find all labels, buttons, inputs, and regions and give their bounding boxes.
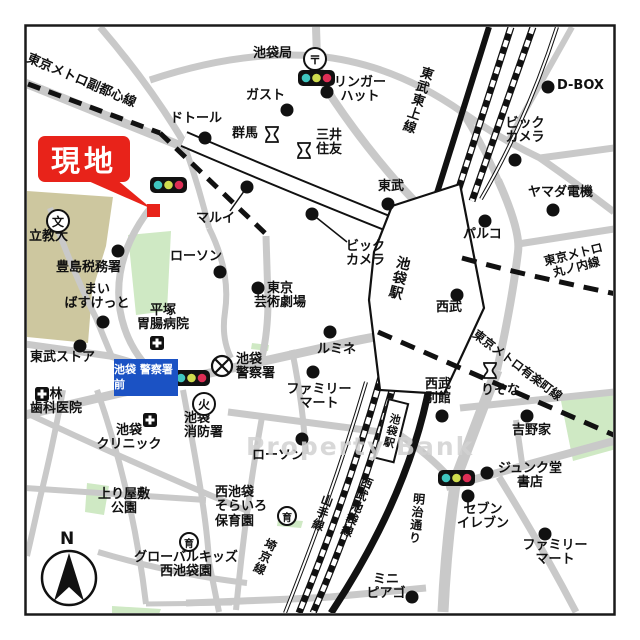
poi-dot-mybasket — [97, 316, 110, 329]
poi-dot-seven — [462, 490, 475, 503]
place-label-bic-camera-center: ビック カメラ — [346, 240, 385, 269]
watermark: Property Bank — [246, 432, 474, 461]
post-office-glyph: 〒 — [309, 51, 321, 68]
poi-dot-seibu-annex — [436, 410, 449, 423]
place-label-ringer-hut: リンガー ハット — [330, 76, 390, 105]
place-label-hiratsuka-hospital: 平塚 胃腸病院 — [133, 304, 193, 333]
police-icon — [212, 356, 232, 376]
place-label-tobu: 東武 — [378, 180, 404, 194]
compass-north-label: N — [60, 530, 74, 549]
poi-dot-tobu — [382, 198, 395, 211]
poi-dot-lumine — [324, 326, 337, 339]
place-label-my-basket: まい ばすけっと — [62, 283, 132, 312]
traffic-light-icon — [150, 177, 187, 193]
place-label-sorairo-nursery: 西池袋 そらいろ 保育園 — [215, 486, 267, 529]
site-marker-label: 現地 — [38, 136, 130, 182]
place-label-ikebukuro-post-office: 池袋局 — [253, 47, 292, 61]
poi-dot-gusto — [281, 104, 294, 117]
nursery-icon: 育 — [277, 506, 297, 526]
traffic-light-icon — [173, 370, 210, 386]
place-label-mini-piago: ミニ ピアゴ — [362, 573, 410, 602]
post-office-icon: 〒 — [303, 47, 327, 71]
poi-dot-familymart-c — [307, 366, 320, 379]
nursery-glyph: 育 — [282, 509, 292, 524]
poi-dot-tax-office — [112, 245, 125, 258]
place-label-toshima-tax-office: 豊島税務署 — [56, 261, 121, 275]
school-glyph: 文 — [52, 213, 64, 230]
bus-stop-sign-ikebukuro-keisatsusho-mae: 池袋 警察署前 — [114, 359, 178, 396]
poi-dot-lawson-n — [214, 266, 227, 279]
school-icon: 文 — [46, 209, 70, 233]
place-label-lumine: ルミネ — [317, 343, 356, 357]
place-label-risona-bank: りそな — [481, 384, 520, 398]
fire-station-icon: 火 — [192, 392, 216, 416]
place-label-marui: マルイ — [196, 212, 235, 226]
place-label-bic-camera-ne: ビック カメラ — [501, 117, 549, 146]
place-label-familymart-center: ファミリー マート — [284, 383, 354, 412]
place-label-seibu-annex: 西武 別館 — [425, 378, 451, 407]
place-label-seibu: 西武 — [436, 301, 462, 315]
place-label-yamada-denki: ヤマダ電機 — [528, 186, 593, 200]
place-label-ikebukuro-fire-station: 池袋 消防署 — [184, 412, 223, 441]
place-label-gusto: ガスト — [246, 89, 285, 103]
place-label-global-kids: グローバルキッズ 西池袋園 — [128, 551, 244, 580]
place-label-tobu-store: 東武ストア — [30, 351, 95, 365]
place-label-lawson-north: ローソン — [170, 250, 222, 264]
poi-dot-bic-ne — [509, 154, 522, 167]
nursery-glyph: 育 — [184, 535, 194, 550]
place-label-doutor: ドトール — [170, 112, 222, 126]
place-label-noboriyashiki-park: 上り屋敷 公園 — [94, 488, 154, 517]
poi-dot-yoshinoya — [521, 410, 534, 423]
place-label-gunma-bank: 群馬 — [232, 127, 258, 141]
place-label-ikebukuro-clinic: 池袋 クリニック — [93, 424, 165, 453]
place-label-dbox: D-BOX — [557, 79, 604, 93]
compass-icon — [42, 551, 96, 605]
place-label-seven-eleven: セブン イレブン — [452, 503, 514, 532]
traffic-light-icon — [438, 470, 475, 486]
place-label-ikebukuro-police-station: 池袋 警察署 — [236, 353, 275, 382]
poi-dot-parco — [479, 215, 492, 228]
place-label-parco: パルコ — [463, 228, 502, 242]
nursery-icon: 育 — [179, 532, 199, 552]
place-label-yoshinoya: 吉野家 — [512, 424, 551, 438]
fire-glyph: 火 — [198, 396, 210, 413]
place-label-familymart-se: ファミリー マート — [519, 539, 591, 568]
map-canvas: 池袋局 〒 ガスト リンガー ハット ドトール 群馬 三井 住友 D-BOX ビ… — [0, 0, 640, 640]
place-label-junkudo: ジュンク堂 書店 — [492, 462, 568, 491]
poi-dot-yamada — [547, 204, 560, 217]
poi-dot-doutor — [199, 132, 212, 145]
place-label-hayashi-dental: 林 歯科医院 — [26, 388, 86, 417]
place-label-smbc: 三井 住友 — [316, 129, 342, 158]
poi-dot-dbox — [542, 81, 555, 94]
place-label-tokyo-art-theatre: 東京 芸術劇場 — [249, 282, 311, 311]
